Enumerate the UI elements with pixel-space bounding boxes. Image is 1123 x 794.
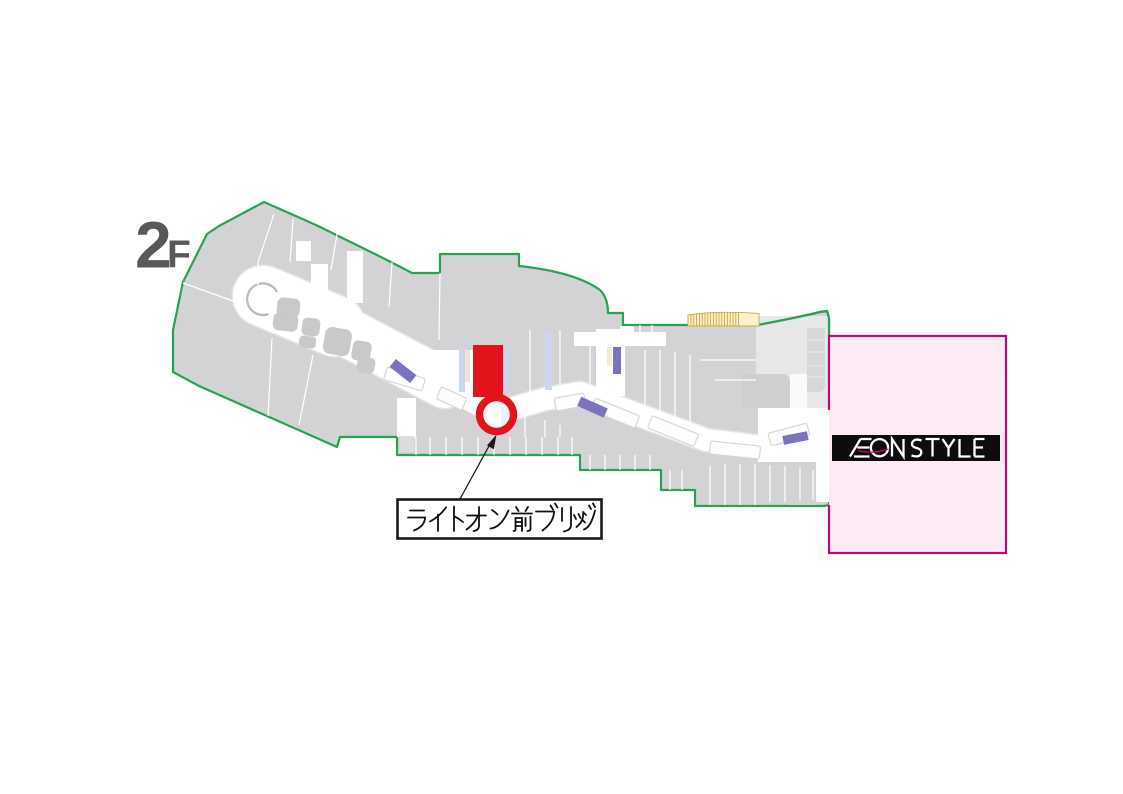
svg-text:F: F	[167, 234, 191, 277]
